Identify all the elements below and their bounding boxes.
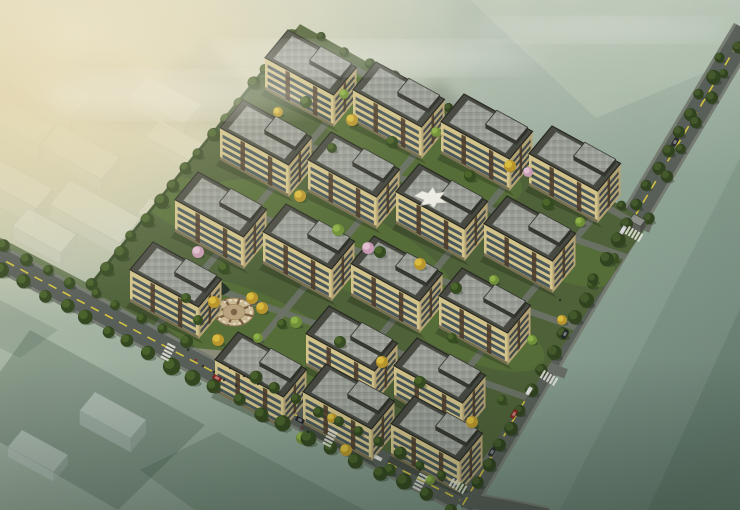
atmosphere-haze	[0, 0, 740, 510]
aerial-site-rendering	[0, 0, 740, 510]
screenshot-root	[0, 0, 740, 510]
